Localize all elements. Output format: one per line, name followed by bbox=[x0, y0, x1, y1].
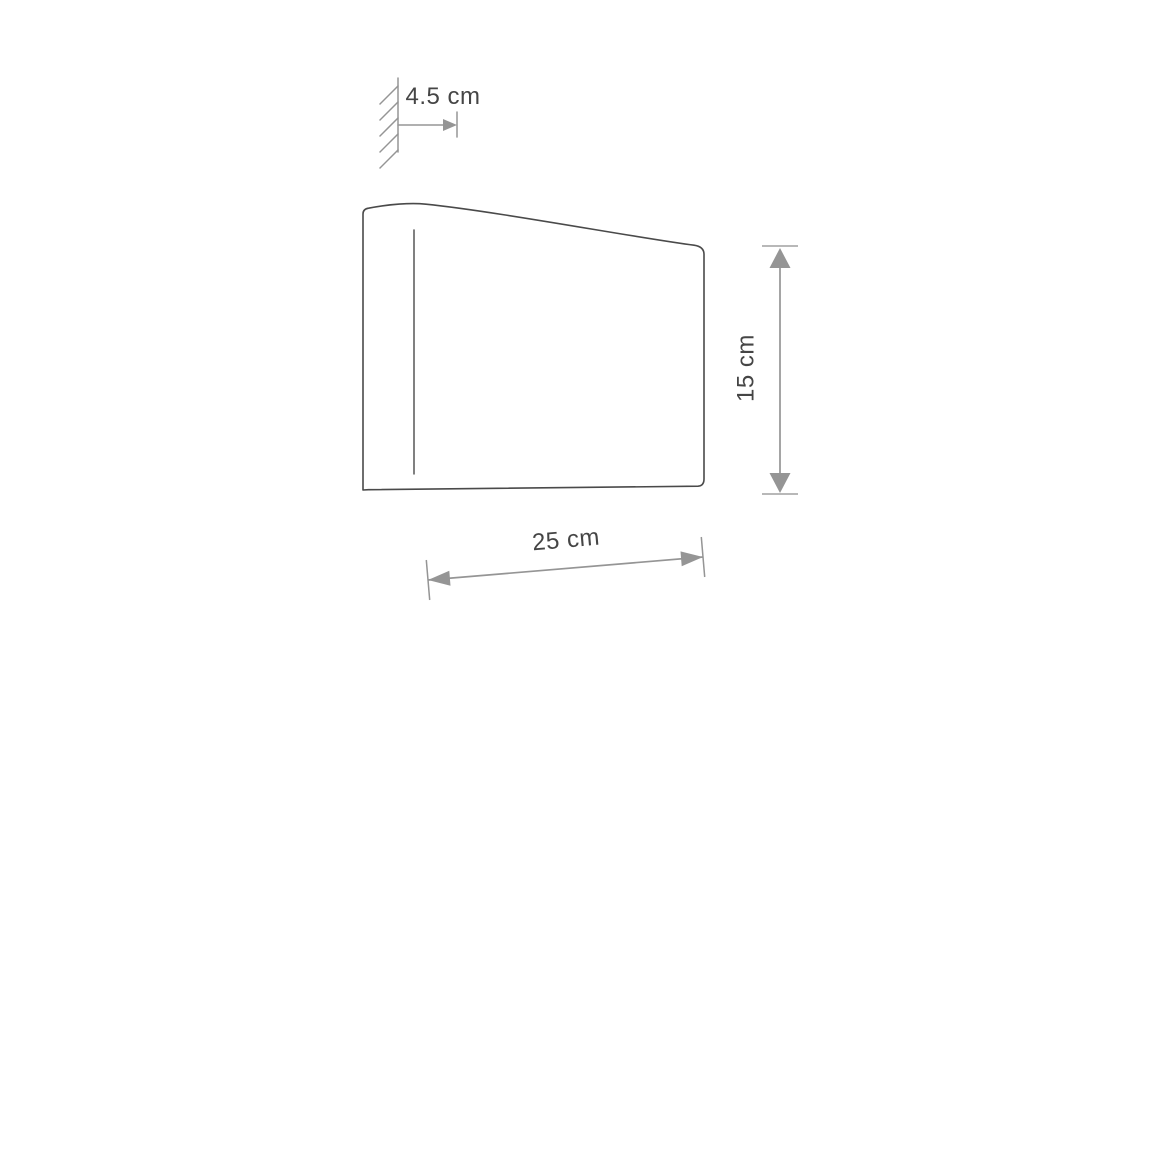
arrowhead-left-icon bbox=[428, 571, 451, 586]
wall-hatching bbox=[380, 86, 398, 168]
width-arrow-line bbox=[428, 557, 703, 580]
hatch-line bbox=[380, 150, 398, 168]
dimension-diagram: 4.5 cm 15 cm bbox=[0, 0, 1160, 1160]
height-dimension: 15 cm bbox=[733, 246, 799, 494]
hatch-line bbox=[380, 134, 398, 152]
lamp-profile bbox=[363, 204, 704, 490]
offset-arrowhead-icon bbox=[443, 119, 457, 131]
offset-label: 4.5 cm bbox=[405, 83, 480, 110]
arrowhead-right-icon bbox=[681, 551, 704, 566]
width-dimension: 25 cm bbox=[426, 524, 704, 600]
height-label: 15 cm bbox=[733, 334, 760, 402]
drawing-svg: 4.5 cm 15 cm bbox=[0, 0, 1160, 1160]
hatch-line bbox=[380, 102, 398, 120]
arrowhead-up-icon bbox=[770, 248, 791, 268]
hatch-line bbox=[380, 86, 398, 104]
hatch-line bbox=[380, 118, 398, 136]
arrowhead-down-icon bbox=[770, 473, 791, 493]
width-label: 25 cm bbox=[531, 524, 601, 557]
